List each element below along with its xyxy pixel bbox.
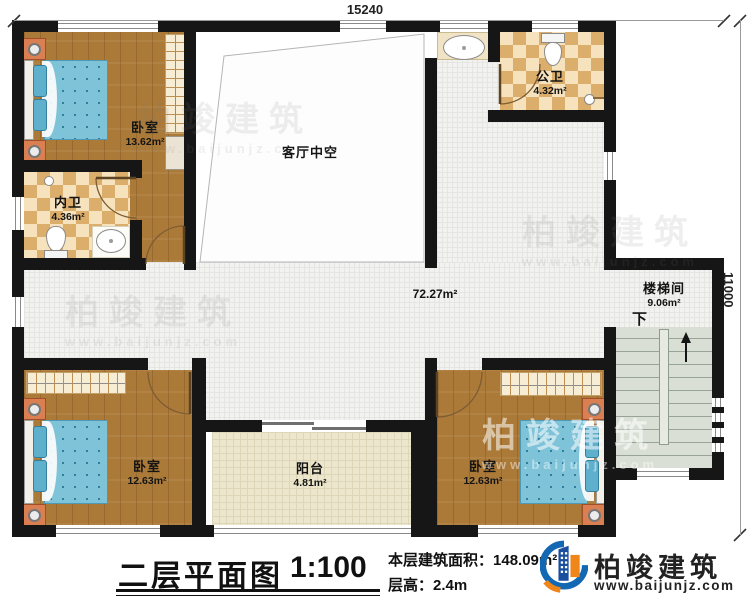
room-area: 72.27m² — [413, 288, 458, 302]
plan-scale: 1:100 — [290, 551, 367, 585]
room-name: 卧室 — [469, 460, 497, 475]
dimension-line-right — [740, 20, 741, 535]
room-name: 客厅中空 — [282, 146, 338, 161]
floor-height-text: 层高：2.4m — [388, 574, 467, 595]
floor-plan: 15240 11000 卧室 13.62m² 内卫 4.36m² 公卫 4.32… — [0, 0, 750, 600]
dimension-width: 15240 — [330, 2, 400, 17]
label-stairwell: 楼梯间 9.06m² — [620, 282, 708, 309]
room-name: 卧室 — [131, 121, 159, 136]
floor-area-label: 本层建筑面积： — [388, 552, 493, 569]
room-name: 内卫 — [54, 196, 82, 211]
room-area: 13.62m² — [125, 136, 164, 148]
room-area: 12.63m² — [463, 475, 502, 487]
label-bedroom-bottomleft: 卧室 12.63m² — [102, 460, 192, 487]
dimension-height: 11000 — [721, 272, 736, 307]
title-underline — [116, 589, 380, 596]
label-balcony: 阳台 4.81m² — [270, 462, 350, 489]
label-bedroom-topleft: 卧室 13.62m² — [100, 121, 190, 148]
label-private-bath: 内卫 4.36m² — [30, 196, 106, 223]
floor-height-label: 层高： — [388, 577, 433, 594]
floor-area-text: 本层建筑面积：148.09m² — [388, 549, 557, 570]
room-area: 4.81m² — [293, 477, 326, 489]
room-area: 4.32m² — [533, 85, 566, 97]
room-area: 12.63m² — [127, 475, 166, 487]
stairs-down-arrow-icon — [681, 332, 691, 362]
company-logo-icon — [540, 538, 588, 594]
room-name: 楼梯间 — [643, 282, 685, 297]
room-name: 公卫 — [536, 70, 564, 85]
room-name: 卧室 — [133, 460, 161, 475]
label-hallway-area: 72.27m² — [395, 288, 475, 302]
dimension-line-top — [14, 20, 724, 21]
floor-height-value: 2.4m — [433, 577, 467, 594]
company-website: www.baijunjz.com — [594, 578, 735, 593]
stairs-down-label: 下 — [632, 308, 647, 329]
room-area: 4.36m² — [51, 211, 84, 223]
label-public-bath: 公卫 4.32m² — [510, 70, 590, 97]
label-living-void: 客厅中空 — [255, 146, 365, 161]
room-name: 阳台 — [296, 462, 324, 477]
room-area: 9.06m² — [647, 297, 680, 309]
label-bedroom-bottomright: 卧室 12.63m² — [438, 460, 528, 487]
